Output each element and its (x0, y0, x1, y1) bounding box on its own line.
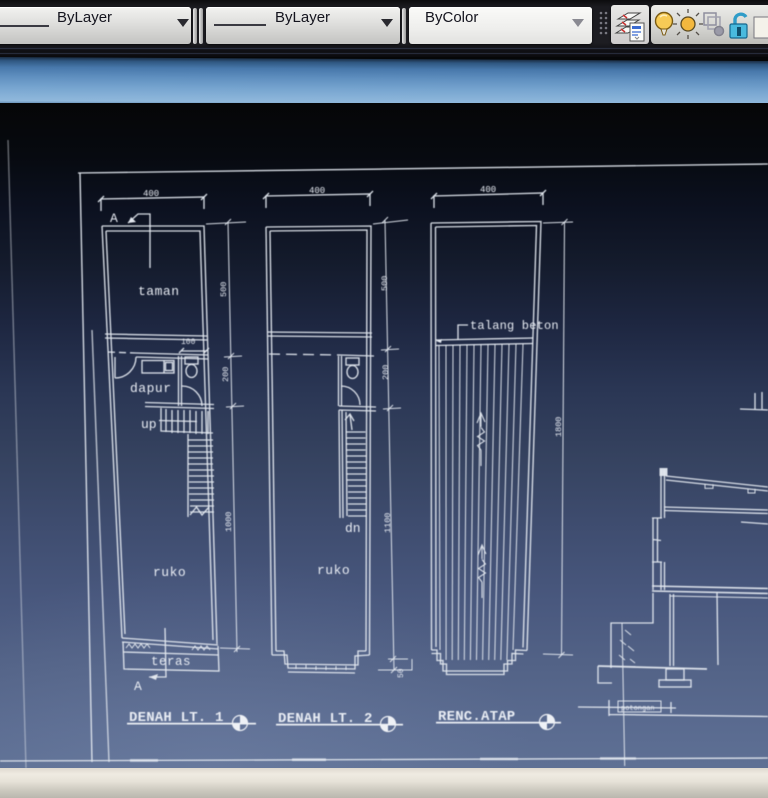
svg-text:1100: 1100 (383, 513, 393, 533)
svg-text:teras: teras (151, 655, 191, 669)
svg-text:A: A (110, 211, 118, 226)
svg-text:500: 500 (219, 282, 229, 297)
svg-text:400: 400 (309, 186, 325, 196)
svg-text:taman: taman (138, 284, 180, 299)
svg-text:potongan: potongan (621, 705, 655, 713)
svg-text:talang beton: talang beton (470, 319, 559, 333)
svg-text:100: 100 (181, 338, 196, 347)
svg-text:500: 500 (380, 276, 390, 291)
svg-text:1000: 1000 (224, 512, 234, 532)
svg-text:400: 400 (143, 189, 159, 199)
svg-text:dapur: dapur (130, 381, 172, 396)
svg-text:ruko: ruko (317, 563, 350, 578)
svg-text:1800: 1800 (554, 417, 564, 437)
svg-text:ruko: ruko (153, 565, 186, 580)
svg-text:200: 200 (381, 365, 391, 380)
svg-text:A: A (134, 679, 142, 694)
svg-text:up: up (141, 417, 157, 432)
svg-text:dn: dn (345, 521, 361, 536)
svg-text:400: 400 (480, 185, 496, 195)
svg-text:50: 50 (397, 668, 406, 678)
svg-text:200: 200 (221, 367, 231, 382)
